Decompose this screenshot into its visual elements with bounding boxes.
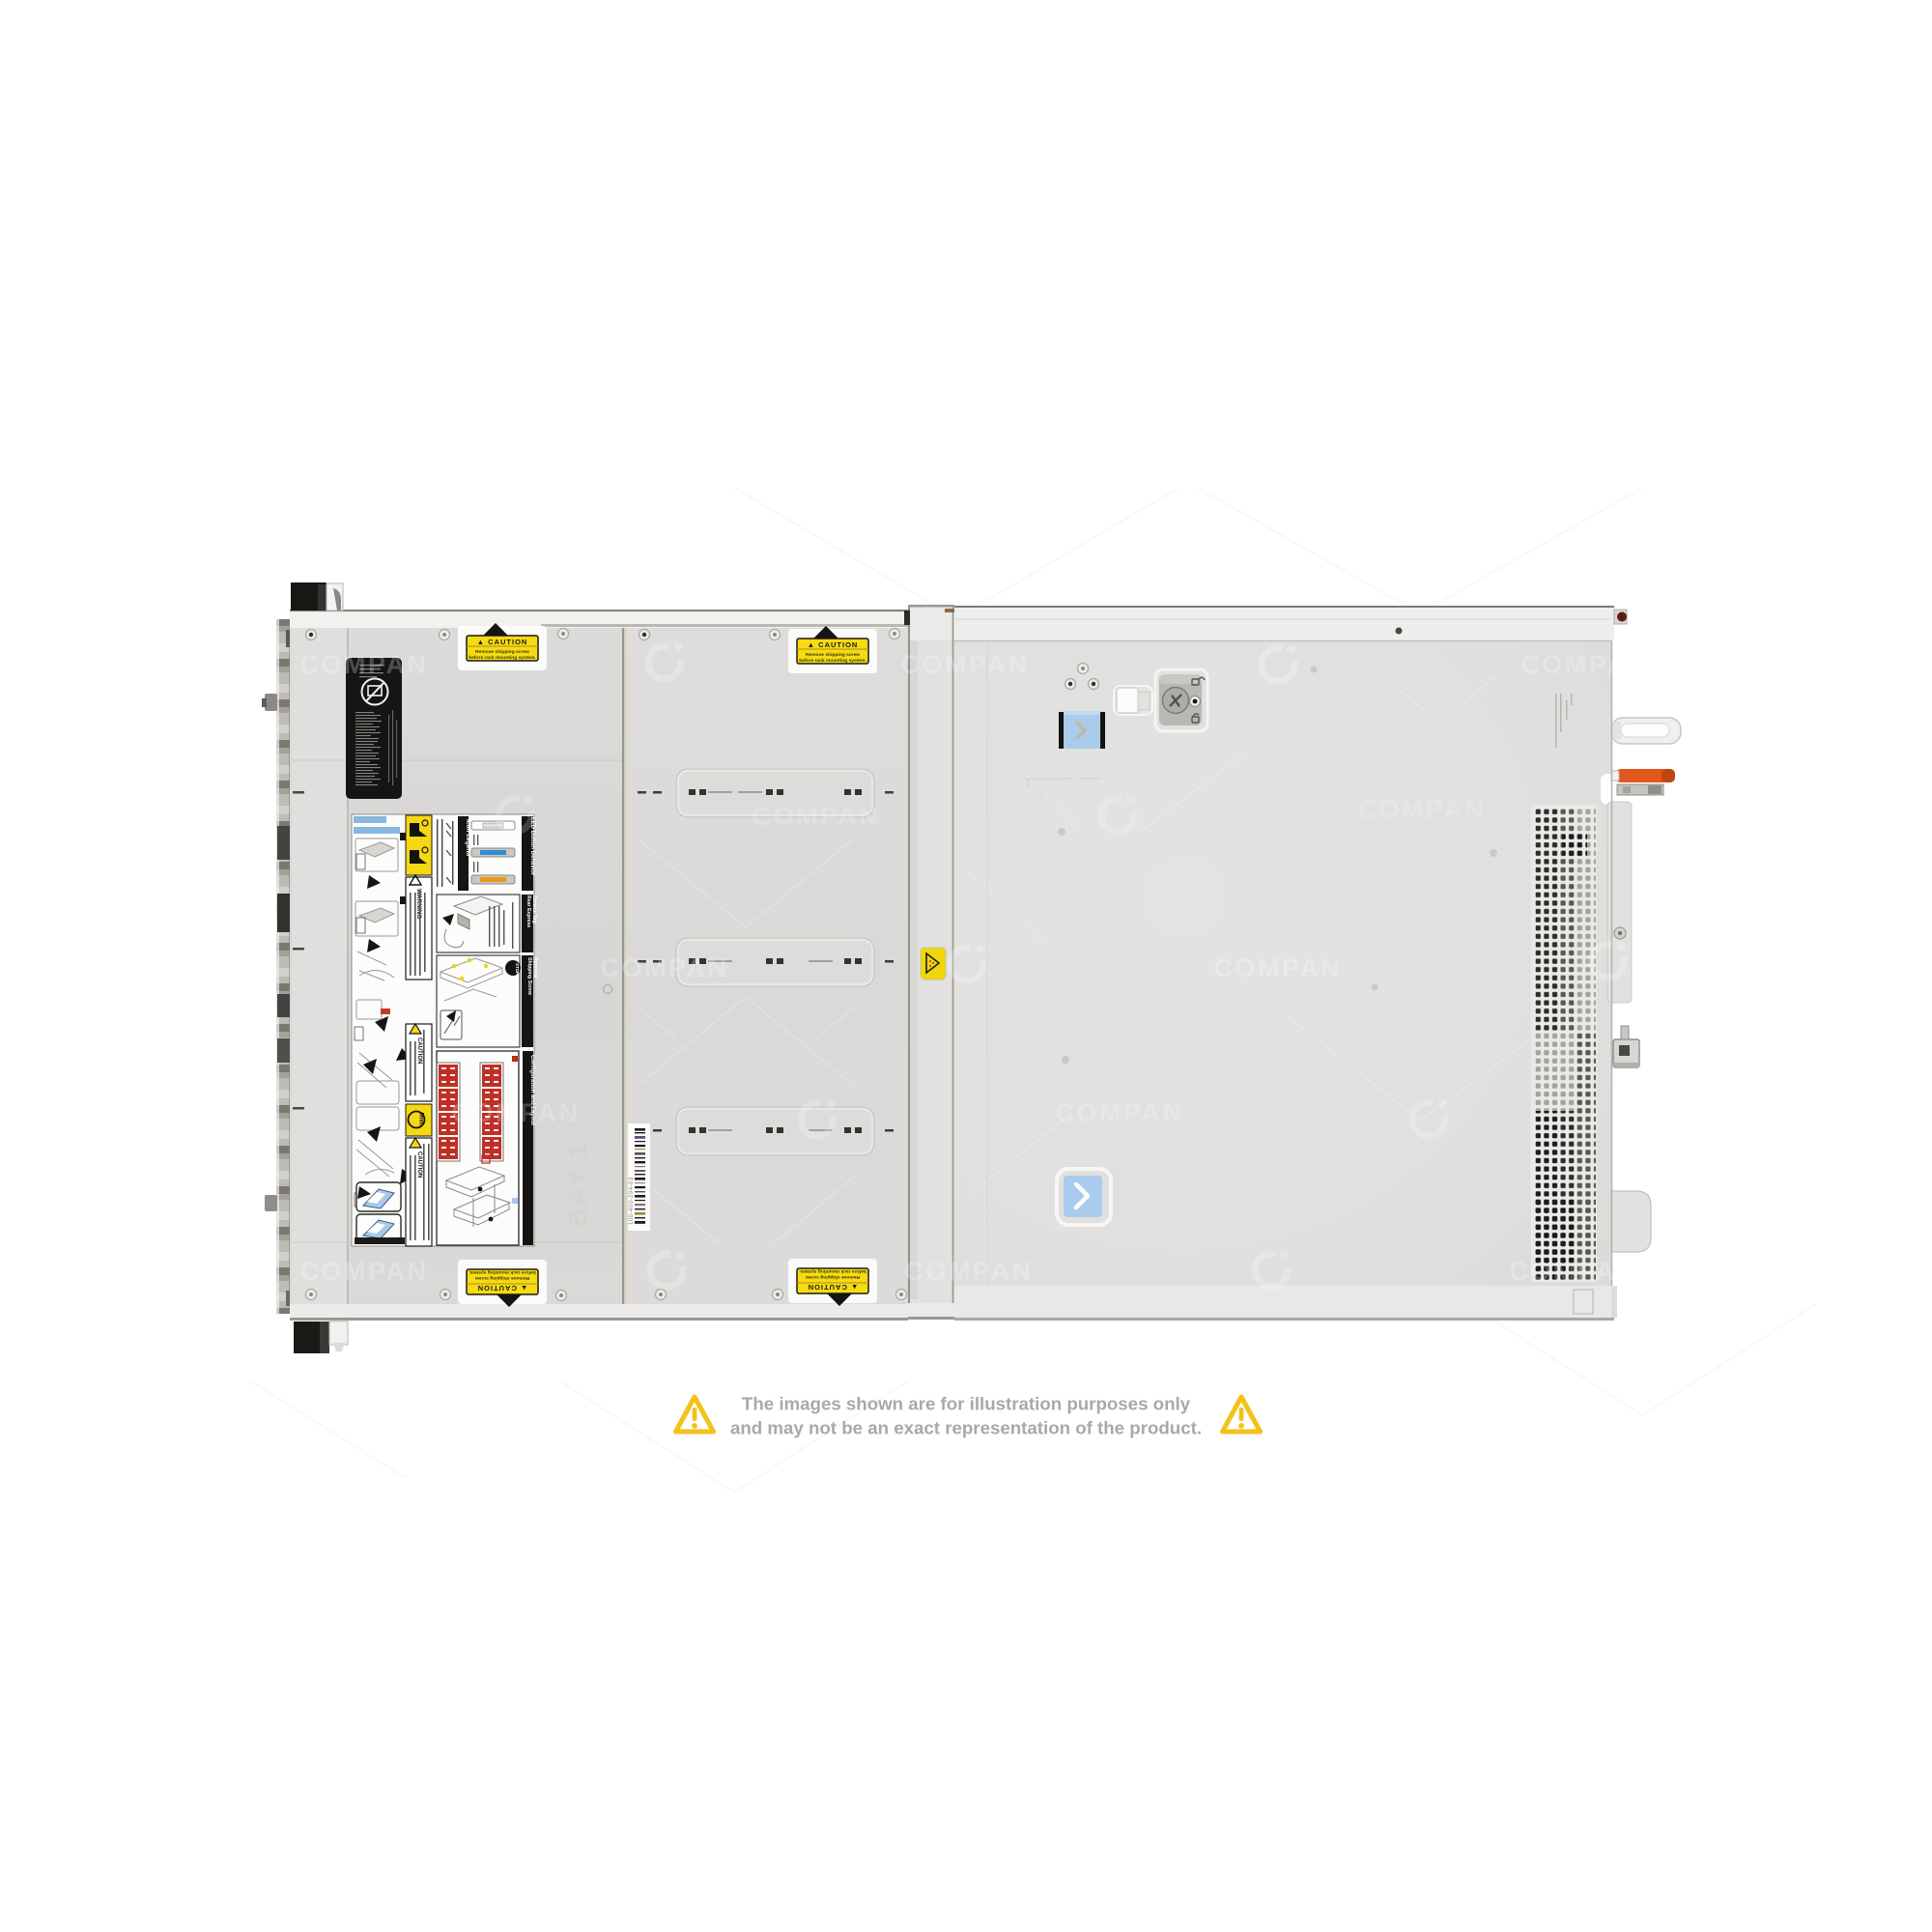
svg-text:Shipping Screw: Shipping Screw [526,957,532,996]
svg-text:5min: 5min [418,1113,424,1126]
svg-text:Removal: Removal [532,957,538,979]
svg-text:Rear Express: Rear Express [526,895,531,927]
svg-text:CAUTION: CAUTION [416,1151,422,1178]
svg-text:The images shown are for illus: The images shown are for illustration pu… [742,1394,1191,1414]
svg-text:STOP: STOP [515,963,520,975]
svg-text:and may not be an exact repres: and may not be an exact representation o… [730,1418,1202,1438]
svg-text:Service Tag: Service Tag [531,895,537,923]
svg-text:BAY 1: BAY 1 [563,1141,592,1227]
svg-text:CAUTION: CAUTION [416,1037,422,1064]
svg-text:WARNING: WARNING [415,889,422,919]
svg-text:Icon Legend: Icon Legend [465,819,471,856]
svg-text:100-400-294-03: 100-400-294-03 [629,1177,635,1225]
